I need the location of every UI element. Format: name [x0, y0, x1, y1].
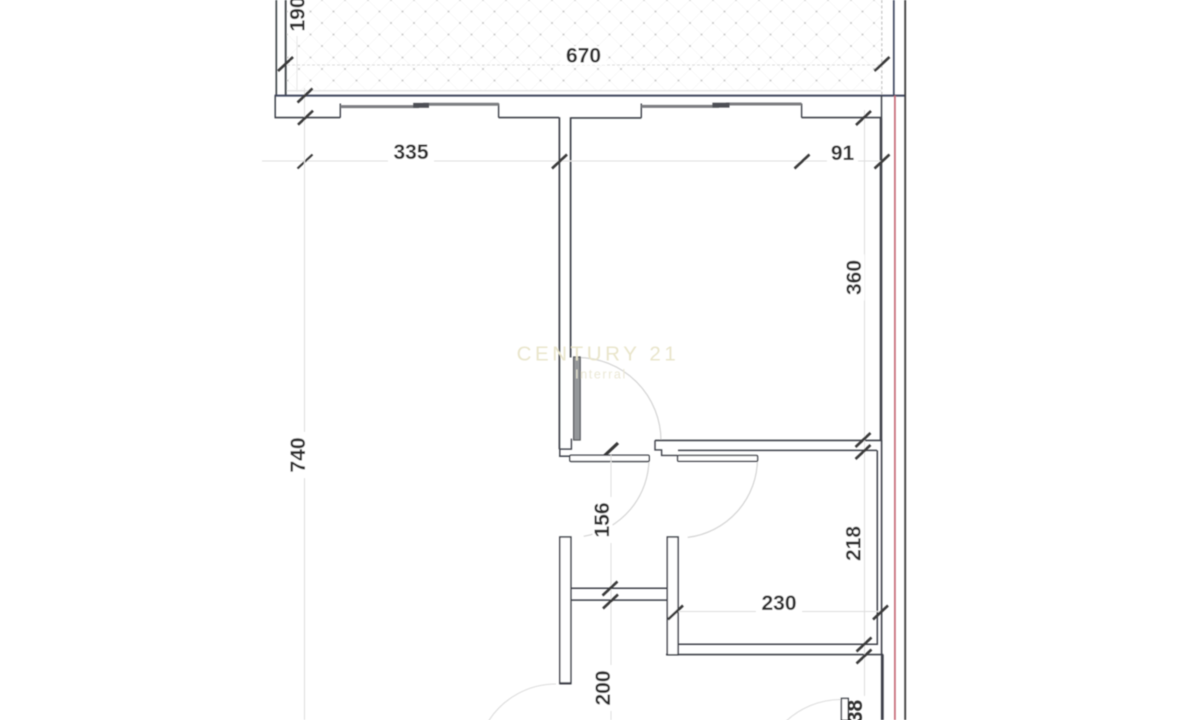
svg-text:740: 740: [287, 437, 310, 472]
svg-text:CENTURY 21: CENTURY 21: [517, 343, 680, 366]
svg-text:156: 156: [591, 502, 614, 537]
svg-text:38: 38: [844, 700, 867, 720]
svg-text:Interral: Interral: [575, 368, 627, 382]
svg-text:200: 200: [592, 670, 615, 705]
svg-text:670: 670: [566, 45, 601, 68]
svg-text:230: 230: [761, 592, 796, 615]
svg-text:335: 335: [393, 141, 428, 164]
svg-text:218: 218: [843, 526, 866, 561]
svg-text:360: 360: [843, 260, 866, 295]
svg-text:190: 190: [286, 0, 309, 32]
svg-text:91: 91: [831, 142, 855, 165]
